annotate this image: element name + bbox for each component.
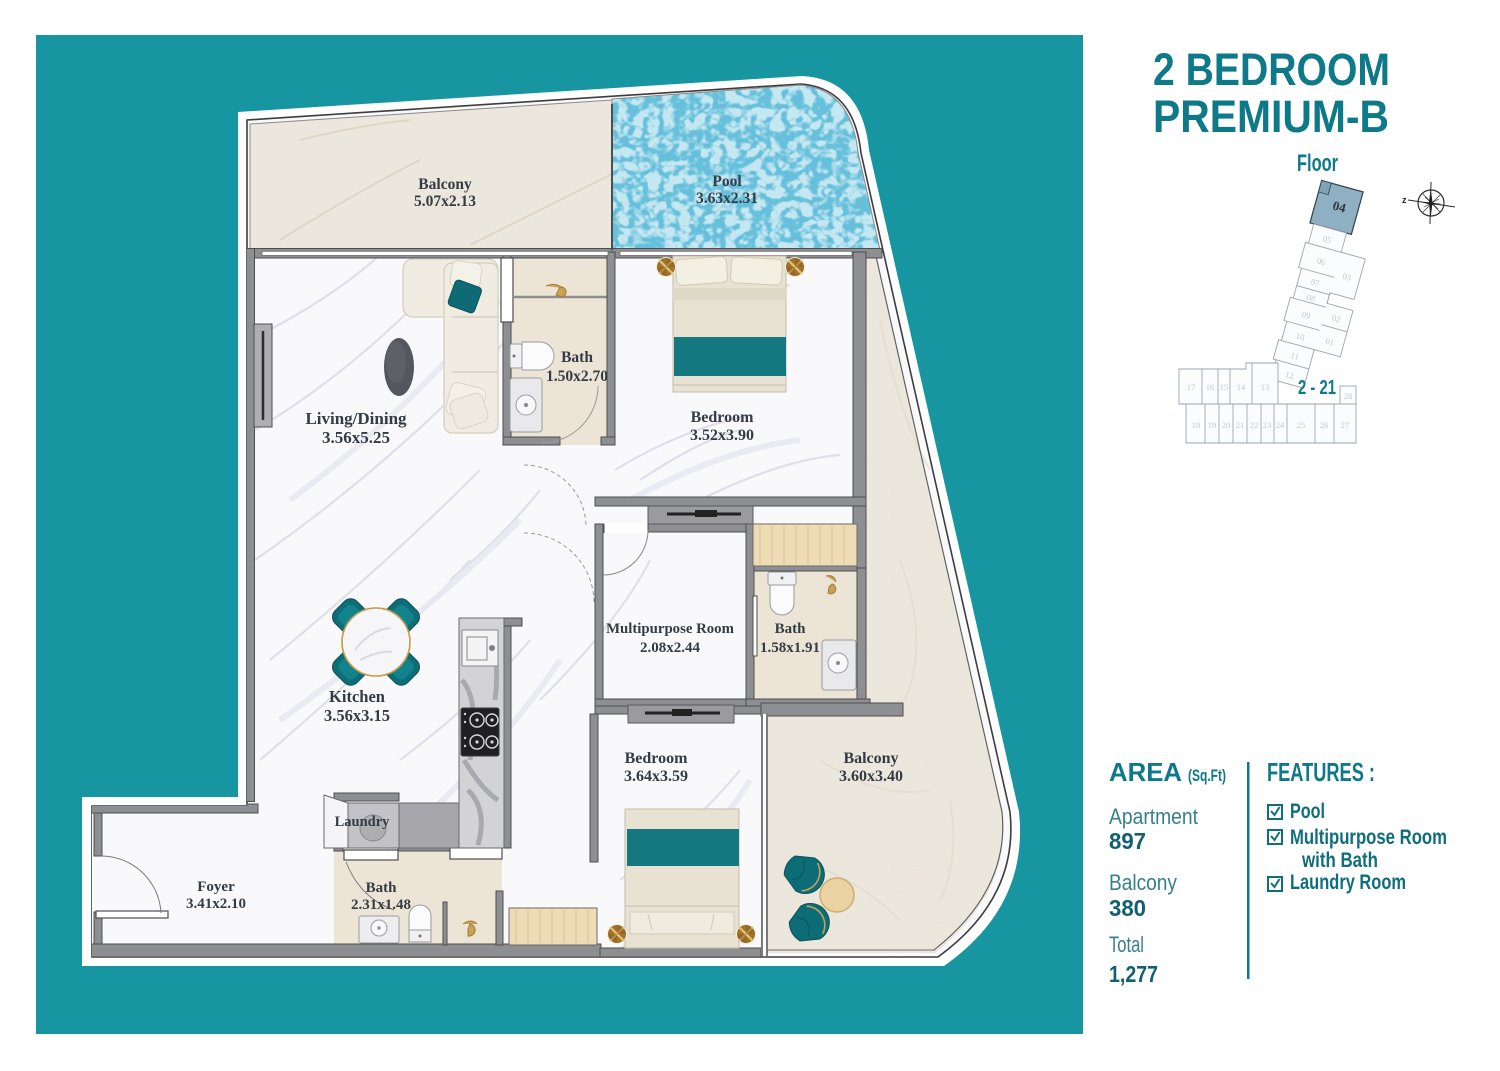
svg-text:27: 27 xyxy=(1341,420,1350,430)
svg-text:2.08x2.44: 2.08x2.44 xyxy=(640,640,701,656)
svg-text:Bedroom: Bedroom xyxy=(691,409,754,426)
svg-text:22: 22 xyxy=(1250,420,1259,430)
svg-text:Bedroom: Bedroom xyxy=(625,750,688,767)
svg-text:z: z xyxy=(1402,195,1407,205)
svg-text:Kitchen: Kitchen xyxy=(329,687,385,706)
svg-text:3.52x3.90: 3.52x3.90 xyxy=(690,427,754,444)
svg-text:26: 26 xyxy=(1320,420,1329,430)
svg-text:PREMIUM-B: PREMIUM-B xyxy=(1153,91,1389,142)
svg-text:3.56x5.25: 3.56x5.25 xyxy=(322,428,390,447)
svg-text:23: 23 xyxy=(1263,420,1272,430)
svg-text:13: 13 xyxy=(1261,382,1270,392)
svg-text:Foyer: Foyer xyxy=(197,879,235,895)
svg-text:15: 15 xyxy=(1220,382,1229,392)
svg-text:AREA: AREA xyxy=(1109,757,1182,787)
svg-text:18: 18 xyxy=(1192,420,1201,430)
svg-text:1.58x1.91: 1.58x1.91 xyxy=(760,640,820,656)
svg-text:Multipurpose Room: Multipurpose Room xyxy=(606,621,735,637)
svg-text:Bath: Bath xyxy=(775,621,807,637)
svg-text:Pool: Pool xyxy=(1290,800,1325,823)
svg-text:3.64x3.59: 3.64x3.59 xyxy=(624,768,688,785)
svg-text:19: 19 xyxy=(1208,420,1217,430)
svg-text:897: 897 xyxy=(1109,828,1146,854)
svg-text:3.56x3.15: 3.56x3.15 xyxy=(324,706,390,725)
svg-text:Multipurpose Room: Multipurpose Room xyxy=(1290,826,1447,849)
svg-text:Bath: Bath xyxy=(561,349,593,366)
svg-text:1,277: 1,277 xyxy=(1109,961,1158,987)
svg-text:3.63x2.31: 3.63x2.31 xyxy=(696,190,758,207)
svg-text:with Bath: with Bath xyxy=(1301,849,1378,872)
svg-text:Laundry Room: Laundry Room xyxy=(1290,871,1406,894)
svg-text:25: 25 xyxy=(1297,420,1306,430)
svg-text:24: 24 xyxy=(1276,420,1285,430)
svg-text:2 BEDROOM: 2 BEDROOM xyxy=(1153,44,1390,95)
svg-text:Balcony: Balcony xyxy=(843,750,898,767)
svg-text:20: 20 xyxy=(1222,420,1231,430)
svg-text:Pool: Pool xyxy=(712,173,742,190)
svg-text:28: 28 xyxy=(1344,391,1353,401)
svg-text:17: 17 xyxy=(1187,382,1196,392)
svg-text:14: 14 xyxy=(1237,382,1246,392)
svg-text:2 - 21: 2 - 21 xyxy=(1298,377,1336,399)
svg-text:3.41x2.10: 3.41x2.10 xyxy=(186,896,246,912)
svg-text:(Sq.Ft): (Sq.Ft) xyxy=(1188,766,1226,785)
svg-text:3.60x3.40: 3.60x3.40 xyxy=(839,768,903,785)
svg-text:1.50x2.70: 1.50x2.70 xyxy=(546,368,608,385)
svg-text:Laundry: Laundry xyxy=(335,814,391,830)
svg-text:16: 16 xyxy=(1206,382,1215,392)
svg-text:2.31x1.48: 2.31x1.48 xyxy=(351,897,411,913)
svg-text:Living/Dining: Living/Dining xyxy=(305,409,407,428)
svg-text:Floor: Floor xyxy=(1297,150,1338,177)
svg-text:380: 380 xyxy=(1109,895,1146,921)
svg-text:FEATURES :: FEATURES : xyxy=(1267,757,1375,787)
svg-text:Balcony: Balcony xyxy=(1109,870,1177,895)
svg-text:Bath: Bath xyxy=(366,880,398,896)
svg-text:Apartment: Apartment xyxy=(1109,804,1198,829)
svg-text:Total: Total xyxy=(1109,932,1144,957)
svg-text:21: 21 xyxy=(1236,420,1245,430)
svg-text:Balcony: Balcony xyxy=(418,176,472,193)
svg-text:5.07x2.13: 5.07x2.13 xyxy=(414,193,476,210)
